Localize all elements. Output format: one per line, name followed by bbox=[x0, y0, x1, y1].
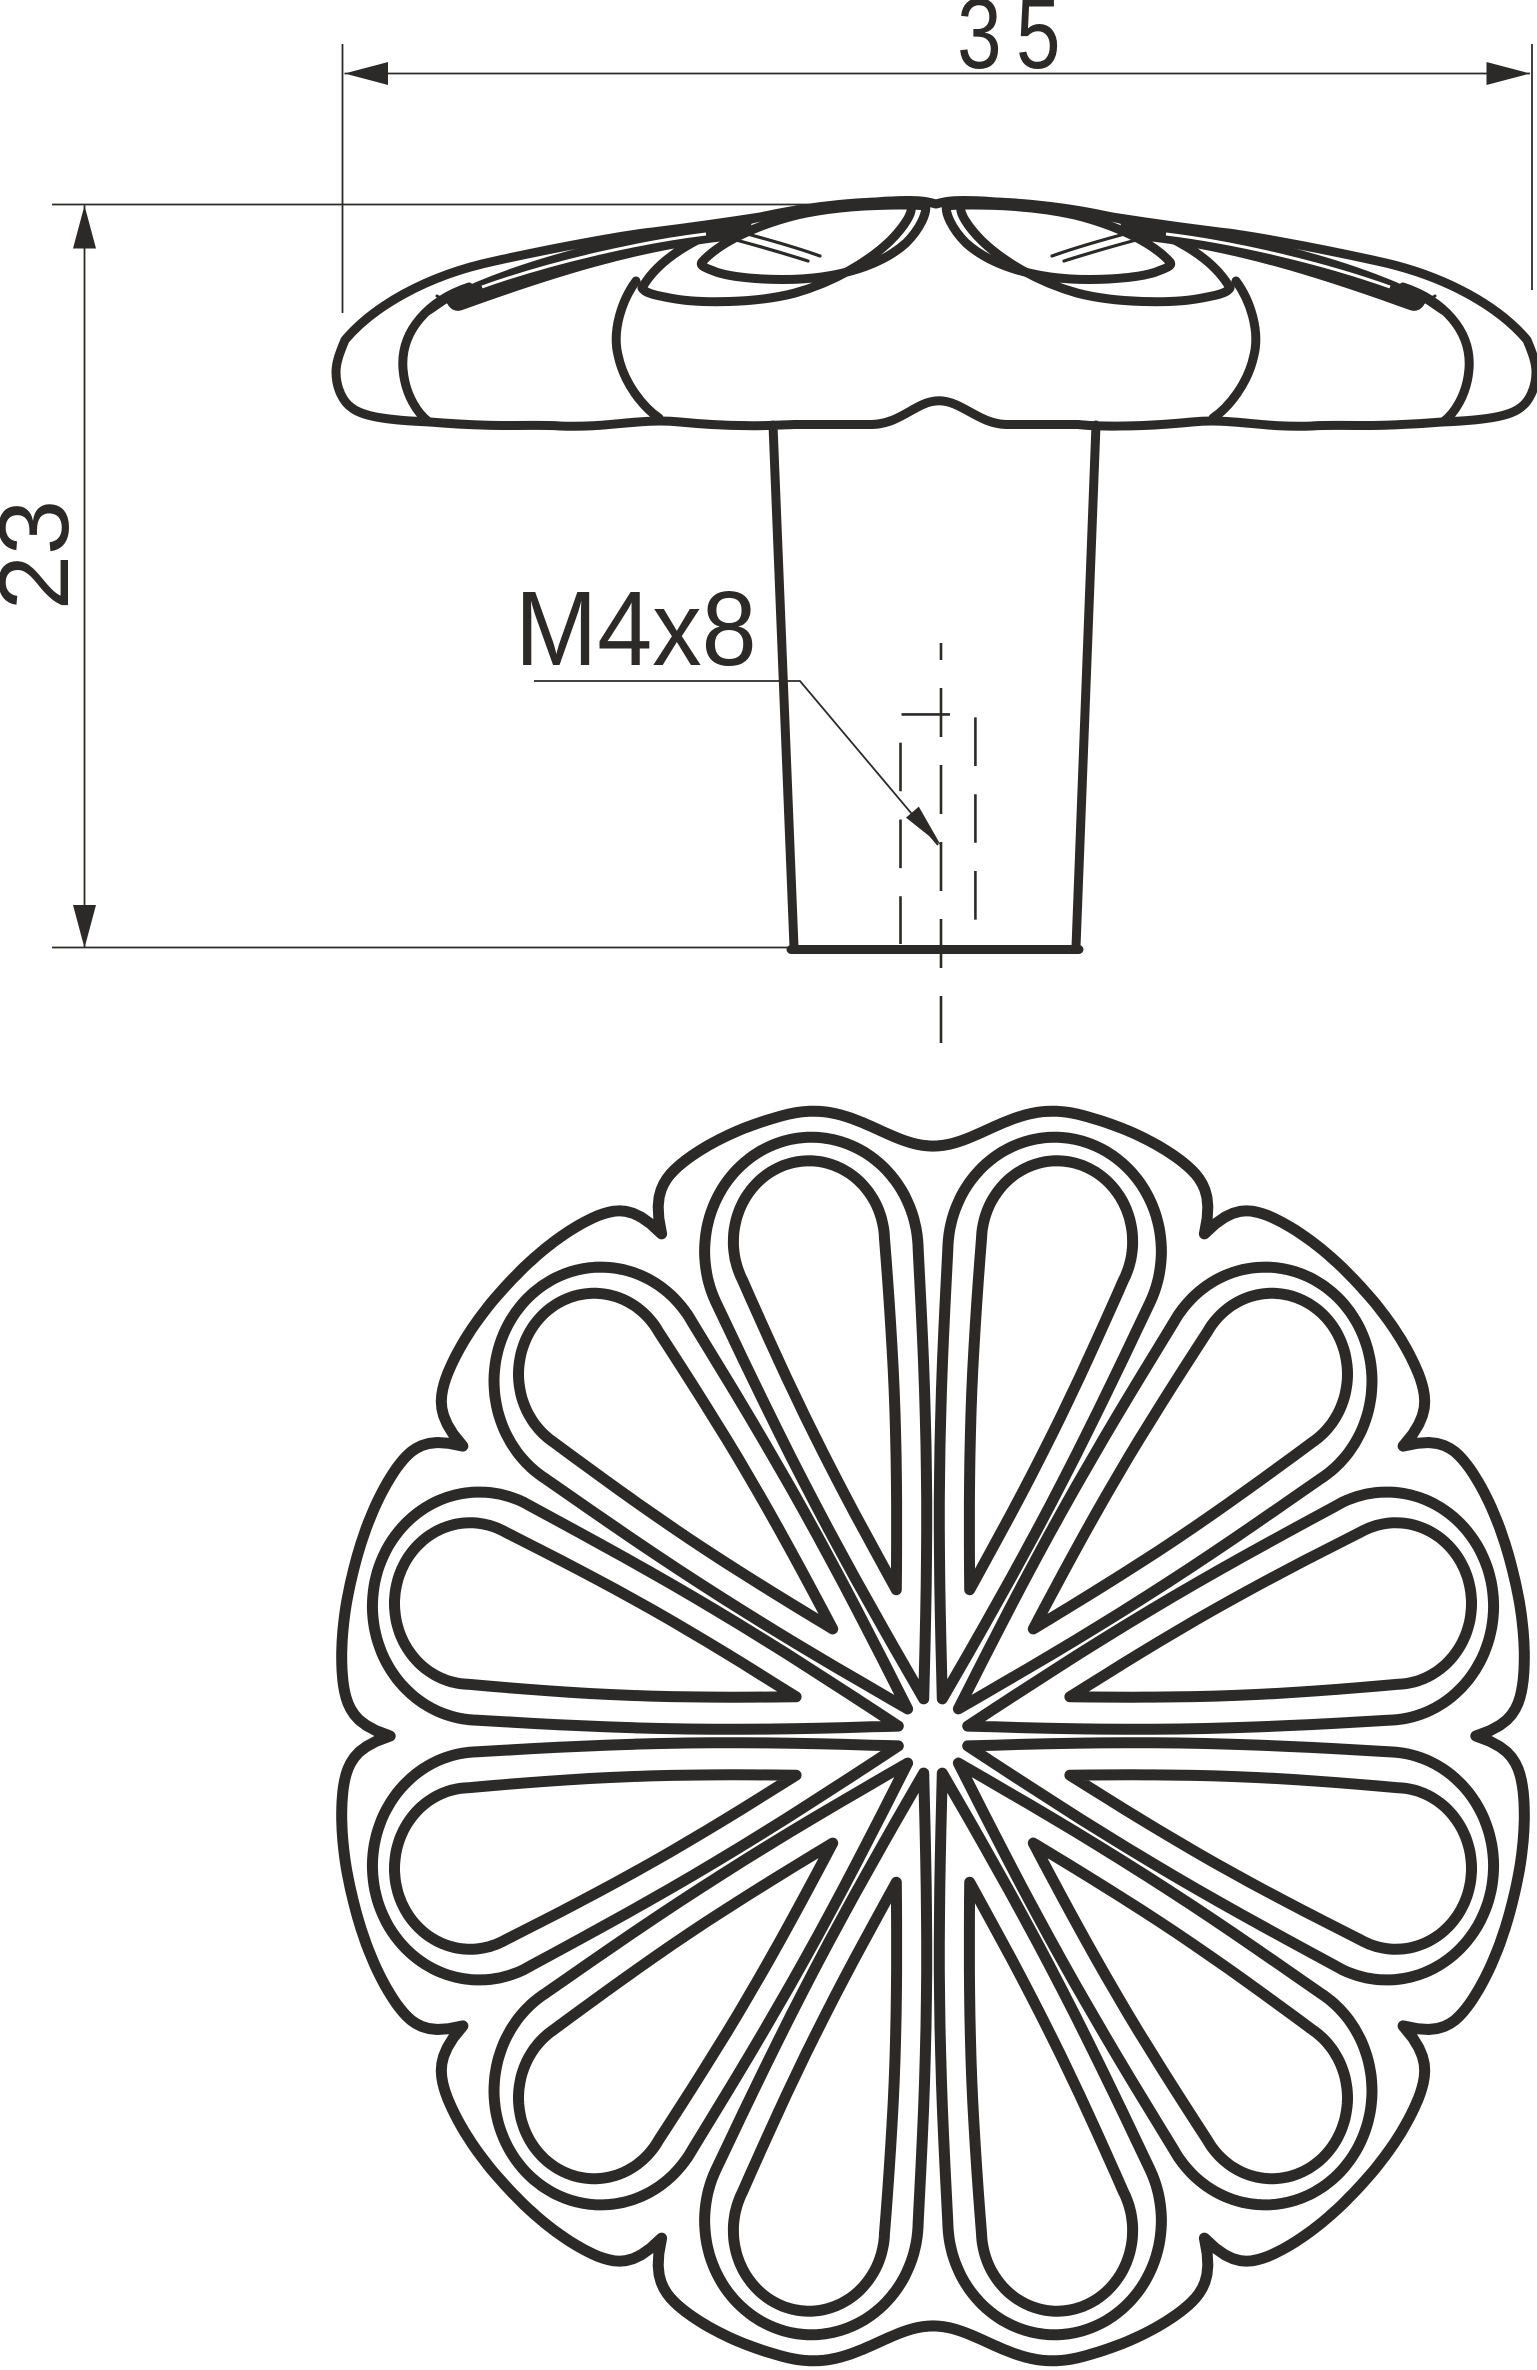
svg-text:M4x8: M4x8 bbox=[515, 569, 757, 688]
svg-text:35: 35 bbox=[957, 0, 1075, 90]
svg-text:23: 23 bbox=[0, 500, 89, 610]
